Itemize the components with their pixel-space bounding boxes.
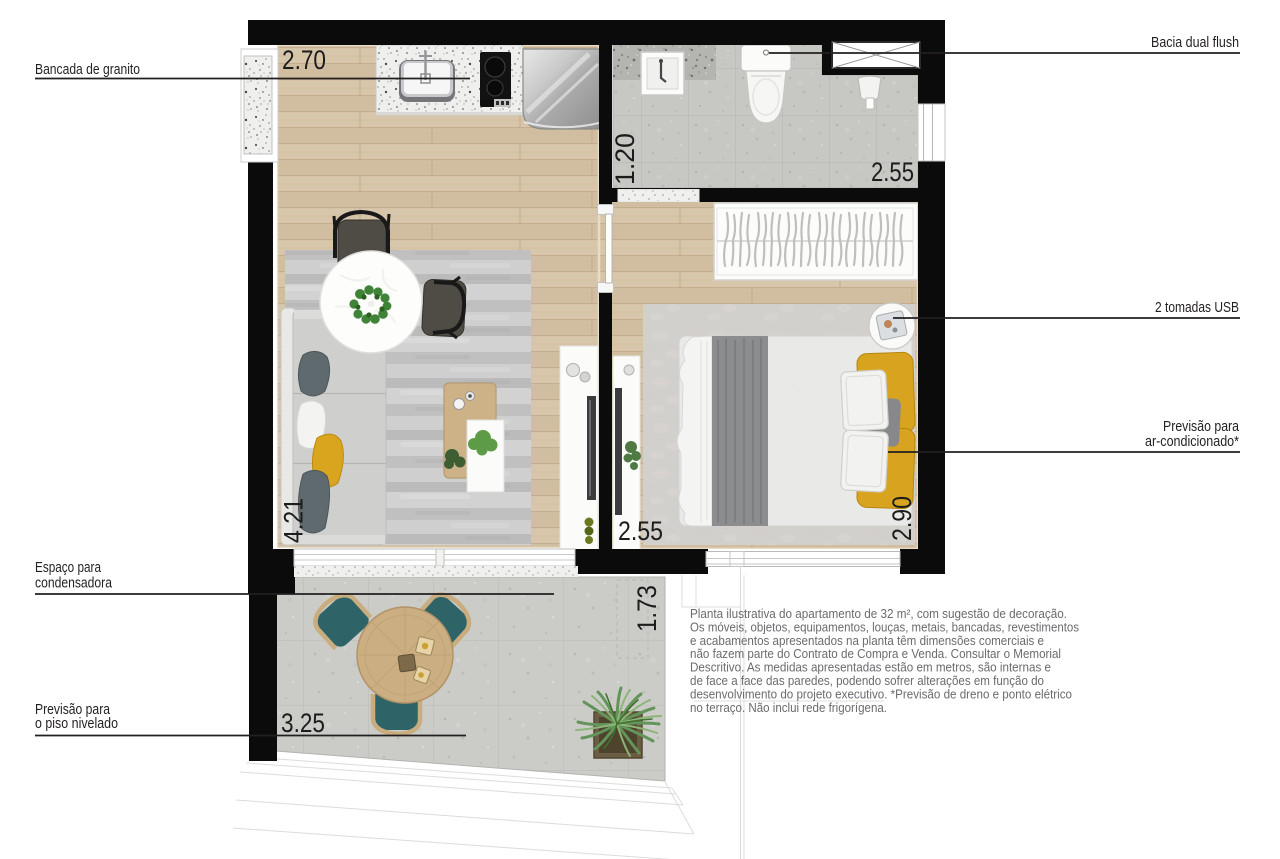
svg-text:1.73: 1.73 bbox=[632, 585, 662, 632]
svg-text:2.90: 2.90 bbox=[887, 496, 917, 541]
svg-text:ar-condicionado*: ar-condicionado* bbox=[1145, 434, 1239, 450]
svg-text:3.25: 3.25 bbox=[281, 708, 325, 738]
svg-text:2.55: 2.55 bbox=[618, 516, 663, 546]
svg-text:2 tomadas USB: 2 tomadas USB bbox=[1155, 300, 1239, 316]
svg-text:no terraço. Não inclui rede fr: no terraço. Não inclui rede frigorígena. bbox=[690, 700, 887, 715]
svg-text:Bancada de granito: Bancada de granito bbox=[35, 62, 140, 78]
svg-text:2.55: 2.55 bbox=[871, 157, 914, 187]
svg-text:1.20: 1.20 bbox=[610, 133, 640, 185]
svg-text:Previsão para: Previsão para bbox=[1163, 419, 1240, 435]
svg-text:condensadora: condensadora bbox=[35, 576, 113, 592]
svg-text:o piso nivelado: o piso nivelado bbox=[35, 716, 118, 732]
svg-text:2.70: 2.70 bbox=[282, 45, 326, 75]
svg-text:Espaço para: Espaço para bbox=[35, 560, 102, 576]
svg-text:4.21: 4.21 bbox=[279, 498, 309, 543]
svg-text:Bacia dual flush: Bacia dual flush bbox=[1151, 35, 1239, 51]
